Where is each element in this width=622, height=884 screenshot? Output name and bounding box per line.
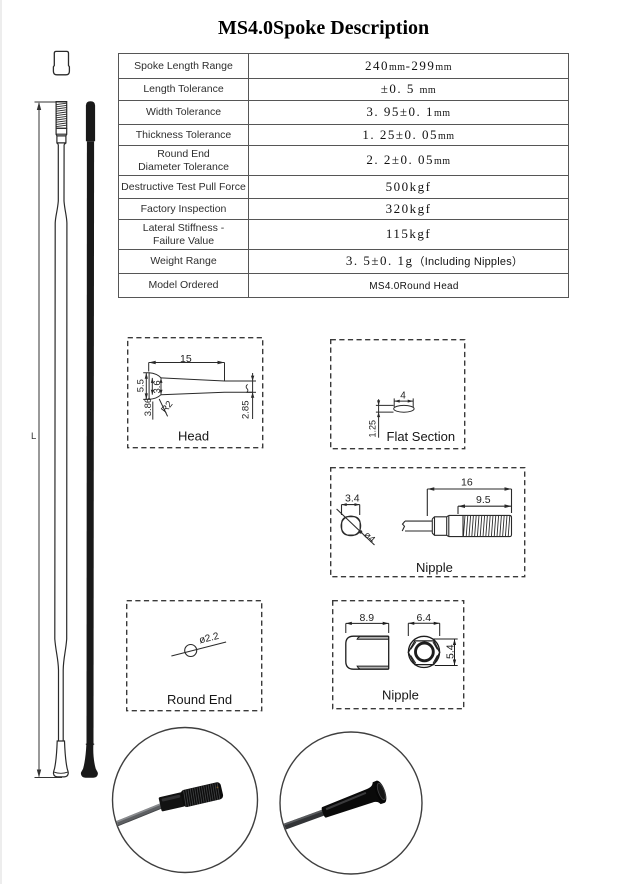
svg-text:9.5: 9.5 [476,494,491,506]
svg-text:16: 16 [461,477,473,489]
svg-text:15: 15 [180,353,192,365]
svg-text:ø4: ø4 [361,530,377,546]
svg-text:Flat Section: Flat Section [387,429,456,444]
svg-text:8.9: 8.9 [360,612,375,624]
svg-text:Head: Head [178,429,209,444]
svg-text:2.85: 2.85 [240,401,251,420]
svg-text:5.5: 5.5 [136,379,147,392]
svg-text:1.25: 1.25 [367,420,377,438]
svg-text:6.4: 6.4 [417,612,432,624]
svg-text:Nipple: Nipple [382,687,419,702]
svg-text:R2: R2 [159,399,175,415]
svg-text:3.86: 3.86 [143,398,154,417]
svg-text:Nipple: Nipple [416,560,453,575]
svg-text:3.4: 3.4 [345,493,360,505]
svg-text:3.6: 3.6 [152,380,163,393]
svg-text:L: L [31,431,36,442]
svg-text:4: 4 [400,390,406,401]
svg-text:5.4: 5.4 [445,644,457,659]
svg-text:Round End: Round End [167,692,232,707]
